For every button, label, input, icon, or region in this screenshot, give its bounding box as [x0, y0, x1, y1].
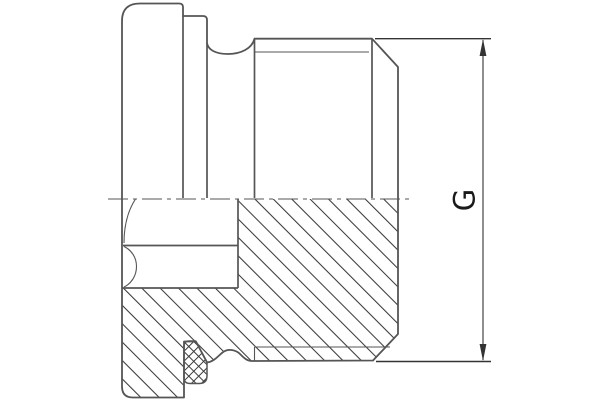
technical-drawing: G [0, 0, 600, 400]
drawing-canvas: G [0, 0, 600, 400]
dimension-label-G: G [447, 189, 481, 211]
